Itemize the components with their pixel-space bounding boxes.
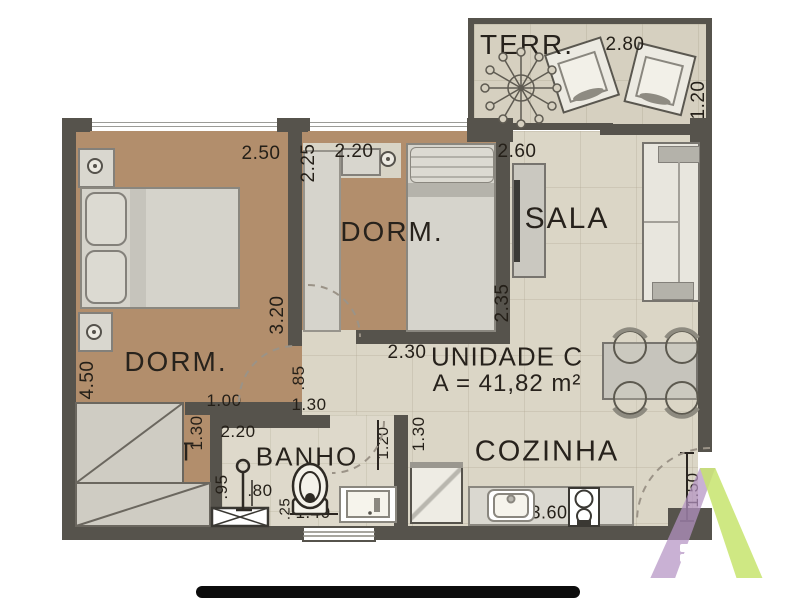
dim-sala-height: 2.35 (492, 284, 514, 323)
dorm2-pillow (410, 147, 494, 183)
sofa-armrest-bottom (652, 282, 694, 300)
dim-dorm2-bottom: 2.30 (388, 342, 427, 364)
bottom-divider-bar (196, 586, 580, 598)
terrace-label: TERR. (480, 29, 574, 61)
dim-dorm2-side: 2.25 (298, 144, 320, 183)
sofa-armrest-top (658, 146, 700, 163)
dim-banho-right-2: 1.30 (409, 416, 429, 451)
dimension-line (680, 452, 694, 454)
dim-shower-width: .80 (247, 481, 272, 501)
dining-table (602, 342, 698, 400)
dorm1-label: DORM. (124, 346, 227, 378)
wall-top-pier-mid (277, 118, 308, 132)
dim-dorm1-width: 2.50 (242, 143, 281, 165)
wall-banho-right (394, 415, 408, 526)
dorm1-duvet-fold (130, 189, 146, 307)
dimension-line (377, 420, 379, 470)
dim-wc-gap: .25 (277, 498, 294, 520)
fridge (410, 462, 463, 524)
dim-shower-depth: .95 (212, 474, 232, 499)
dim-hall-a: 1.00 (206, 391, 241, 411)
dorm2-bed-headband (408, 183, 494, 197)
wall-hall-stub (185, 402, 302, 415)
dim-counter-width: 3.60 (530, 503, 567, 524)
banho-label: BANHO (256, 442, 358, 473)
lamp-icon (87, 158, 103, 174)
sliding-door-panel-1 (513, 123, 613, 128)
unit-area: A = 41,82 m² (433, 370, 582, 398)
unit-title: UNIDADE C (431, 342, 583, 373)
dim-hall-b: 1.30 (291, 395, 326, 415)
dim-dorm1-wall: 3.20 (267, 296, 289, 335)
closet-label: CLOSET (85, 437, 195, 468)
dorm2-label: DORM. (340, 216, 443, 248)
sofa-seam-h (644, 221, 678, 223)
floor-plan: TERR. DORM. DORM. SALA CLOSET BANHO COZI… (0, 0, 800, 610)
sofa-seam-v (678, 162, 680, 282)
cozinha-label: COZINHA (475, 436, 620, 469)
lamp-icon (86, 324, 102, 340)
dim-terrace-depth: 1.20 (688, 81, 710, 120)
tv-icon (514, 180, 520, 262)
wall-right (698, 131, 712, 452)
wall-bottom (62, 526, 680, 540)
dimension-line (290, 513, 338, 515)
brand-logo (648, 468, 768, 578)
dorm1-pillow-1 (85, 192, 127, 246)
dim-sala-width: 2.60 (498, 141, 537, 163)
dorm2-window (308, 118, 471, 131)
dim-dorm2-width: 2.20 (335, 141, 374, 163)
fridge-top-bar (410, 462, 463, 468)
dim-banho-width: 2.20 (220, 422, 255, 442)
dim-closet-side: 1.30 (187, 415, 207, 450)
dorm1-window (90, 118, 281, 131)
dim-dorm1-length: 4.50 (77, 361, 99, 400)
wall-left (62, 118, 76, 540)
lamp-icon (380, 151, 396, 167)
dim-closet-width: 1.50 (80, 503, 117, 524)
sala-label: SALA (525, 202, 610, 236)
logo-window-icon (680, 544, 706, 564)
dim-terrace-width: 2.80 (606, 34, 645, 56)
dim-hall-height: .85 (289, 365, 309, 390)
sliding-door-panel-2 (600, 130, 692, 135)
dorm1-pillow-2 (85, 250, 127, 304)
